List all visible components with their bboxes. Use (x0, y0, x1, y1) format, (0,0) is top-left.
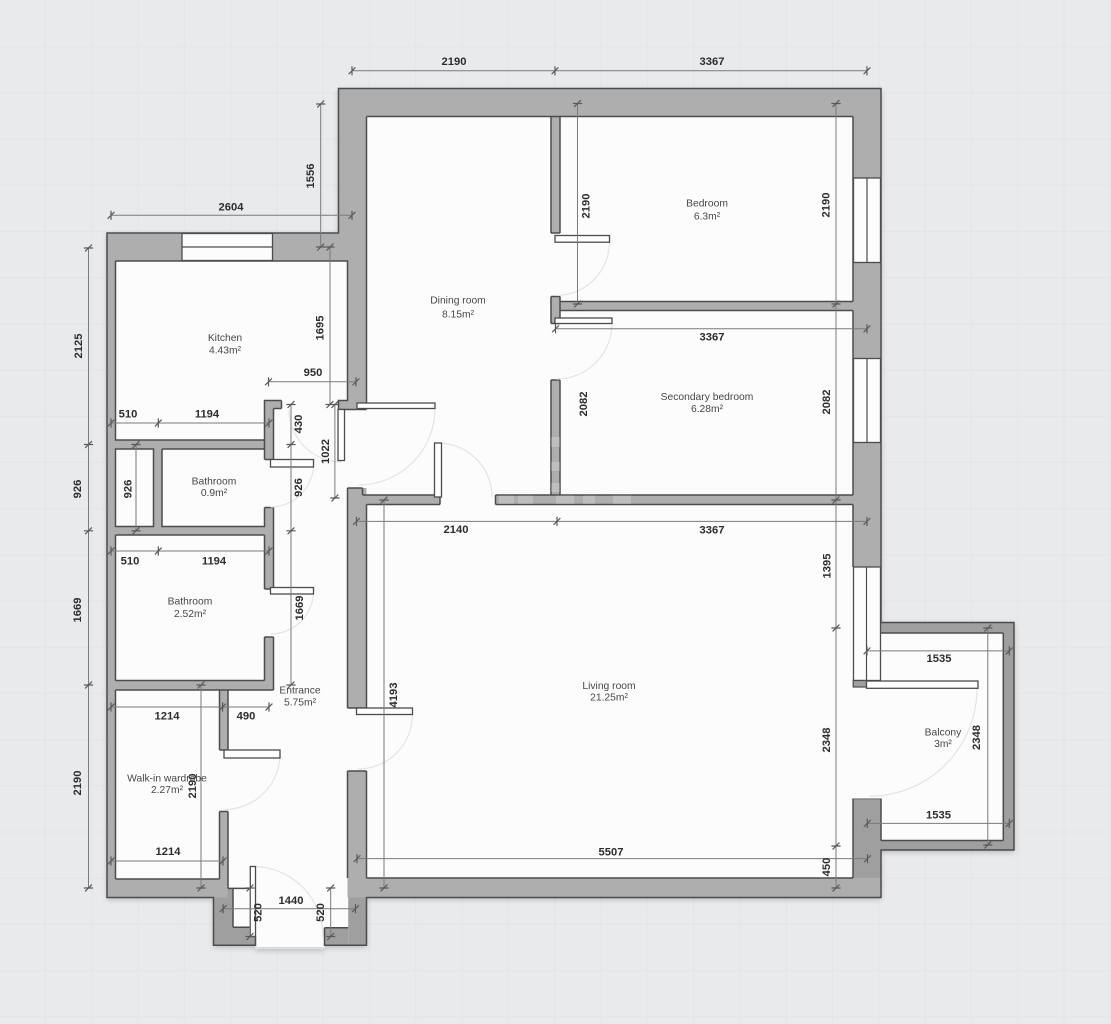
svg-text:2190: 2190 (72, 771, 84, 796)
svg-text:Bathroom: Bathroom (168, 597, 213, 608)
svg-text:Kitchen: Kitchen (208, 333, 243, 344)
svg-text:1669: 1669 (72, 598, 84, 623)
svg-text:510: 510 (119, 409, 138, 421)
svg-text:0.9m²: 0.9m² (201, 488, 228, 499)
svg-text:520: 520 (315, 903, 327, 922)
svg-text:5507: 5507 (599, 847, 624, 859)
svg-text:Bedroom: Bedroom (686, 199, 728, 210)
svg-text:926: 926 (123, 480, 135, 499)
svg-text:Walk-in wardrobe: Walk-in wardrobe (127, 774, 207, 785)
svg-text:6.28m²: 6.28m² (691, 404, 724, 415)
svg-text:490: 490 (237, 711, 256, 723)
svg-text:926: 926 (293, 478, 305, 497)
svg-text:1395: 1395 (822, 554, 834, 579)
svg-text:430: 430 (293, 415, 305, 434)
svg-text:Entrance: Entrance (279, 686, 320, 697)
svg-text:2190: 2190 (442, 56, 467, 68)
svg-text:Balcony: Balcony (925, 728, 962, 739)
svg-text:2190: 2190 (821, 193, 833, 218)
svg-text:1214: 1214 (156, 846, 182, 858)
svg-text:3367: 3367 (700, 332, 725, 344)
svg-text:2604: 2604 (219, 202, 245, 214)
svg-text:2348: 2348 (971, 725, 983, 750)
svg-text:2348: 2348 (821, 728, 833, 753)
svg-text:2125: 2125 (73, 334, 85, 359)
svg-text:Dining room: Dining room (430, 296, 486, 307)
svg-text:1669: 1669 (294, 596, 306, 621)
svg-text:Living room: Living room (582, 681, 635, 692)
svg-text:1535: 1535 (926, 810, 951, 822)
svg-text:1022: 1022 (320, 439, 332, 464)
svg-text:950: 950 (304, 367, 323, 379)
svg-text:2140: 2140 (444, 524, 469, 536)
svg-text:3367: 3367 (700, 525, 725, 537)
svg-text:2082: 2082 (821, 390, 833, 415)
svg-text:3367: 3367 (700, 56, 725, 68)
svg-text:4193: 4193 (388, 683, 400, 708)
svg-text:6.3m²: 6.3m² (694, 212, 721, 223)
svg-text:926: 926 (72, 480, 84, 499)
svg-text:1194: 1194 (202, 556, 227, 568)
svg-text:5.75m²: 5.75m² (284, 698, 317, 709)
svg-text:2.27m²: 2.27m² (151, 785, 184, 796)
svg-text:21.25m²: 21.25m² (590, 693, 628, 704)
svg-text:1556: 1556 (305, 164, 317, 189)
svg-text:Secondary bedroom: Secondary bedroom (661, 392, 754, 403)
svg-text:450: 450 (821, 858, 833, 877)
svg-text:2190: 2190 (581, 194, 593, 219)
svg-text:2.52m²: 2.52m² (174, 609, 207, 620)
svg-text:8.15m²: 8.15m² (442, 310, 475, 321)
svg-text:1440: 1440 (279, 895, 304, 907)
svg-text:510: 510 (121, 556, 140, 568)
svg-text:1535: 1535 (927, 653, 952, 665)
svg-text:1214: 1214 (155, 711, 181, 723)
svg-text:Bathroom: Bathroom (192, 477, 237, 488)
svg-text:2082: 2082 (578, 392, 590, 417)
svg-text:4.43m²: 4.43m² (209, 346, 242, 357)
svg-text:520: 520 (253, 903, 265, 922)
svg-text:3m²: 3m² (934, 739, 952, 750)
svg-text:1194: 1194 (195, 409, 220, 421)
svg-text:1695: 1695 (315, 316, 327, 341)
